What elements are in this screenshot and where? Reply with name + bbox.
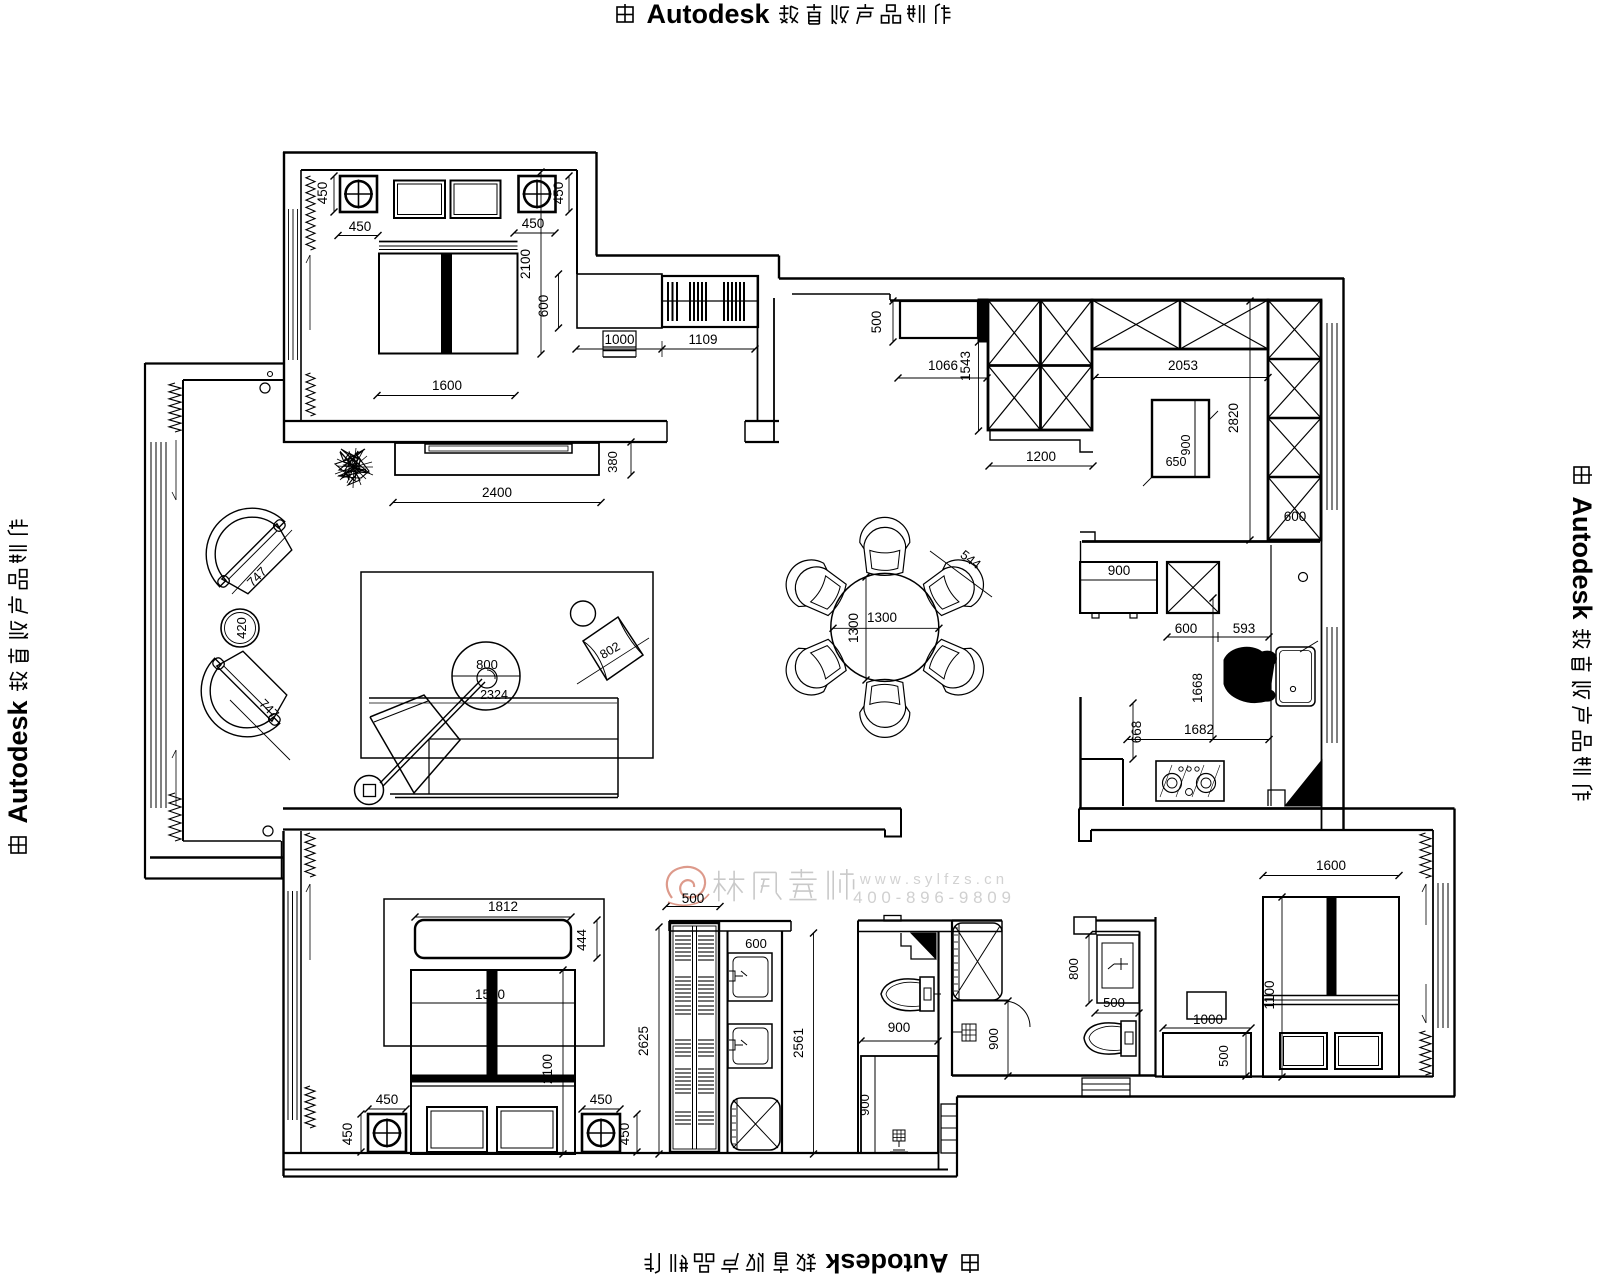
svg-text:2561: 2561 [791, 1028, 806, 1058]
svg-text:450: 450 [590, 1092, 613, 1107]
svg-text:Autodesk: Autodesk [825, 1248, 949, 1278]
svg-text:600: 600 [745, 936, 767, 951]
svg-text:1500: 1500 [475, 987, 505, 1002]
svg-text:420: 420 [234, 617, 249, 639]
svg-text:2324: 2324 [480, 688, 508, 702]
svg-text:1000: 1000 [604, 332, 634, 347]
svg-text:1543: 1543 [958, 351, 973, 381]
svg-text:900: 900 [986, 1028, 1001, 1050]
svg-text:2820: 2820 [1226, 403, 1241, 433]
svg-text:600: 600 [1284, 509, 1307, 524]
svg-text:900: 900 [857, 1094, 872, 1116]
svg-text:593: 593 [1233, 621, 1256, 636]
svg-text:500: 500 [1103, 995, 1125, 1010]
svg-text:450: 450 [340, 1123, 355, 1146]
svg-text:900: 900 [1108, 563, 1131, 578]
svg-text:444: 444 [574, 929, 589, 951]
svg-text:1300: 1300 [867, 610, 897, 625]
svg-text:600: 600 [536, 295, 551, 318]
svg-text:1200: 1200 [1026, 449, 1056, 464]
svg-text:Autodesk: Autodesk [1567, 496, 1597, 620]
svg-text:Autodesk: Autodesk [3, 700, 33, 824]
svg-text:Autodesk: Autodesk [646, 0, 770, 29]
svg-text:2400: 2400 [482, 485, 512, 500]
svg-text:1109: 1109 [688, 332, 717, 347]
svg-text:1812: 1812 [488, 899, 518, 914]
svg-text:w w w . s y l f z s . c n: w w w . s y l f z s . c n [859, 871, 1004, 888]
svg-text:1300: 1300 [846, 613, 861, 643]
svg-text:650: 650 [1166, 455, 1187, 469]
svg-text:1100: 1100 [1262, 980, 1277, 1009]
svg-text:2625: 2625 [636, 1026, 651, 1056]
svg-text:450: 450 [551, 182, 566, 205]
svg-text:2053: 2053 [1168, 358, 1198, 373]
svg-text:1600: 1600 [432, 378, 462, 393]
svg-text:1682: 1682 [1184, 722, 1214, 737]
svg-text:2100: 2100 [518, 249, 533, 279]
svg-text:450: 450 [376, 1092, 399, 1107]
svg-text:380: 380 [605, 451, 620, 473]
svg-text:900: 900 [888, 1020, 911, 1035]
svg-text:500: 500 [682, 891, 705, 906]
svg-text:1600: 1600 [1316, 858, 1346, 873]
svg-text:500: 500 [869, 311, 884, 334]
svg-text:900: 900 [1179, 435, 1193, 456]
svg-text:1066: 1066 [928, 358, 958, 373]
svg-text:2100: 2100 [540, 1054, 555, 1084]
svg-text:600: 600 [1175, 621, 1198, 636]
svg-text:450: 450 [617, 1123, 632, 1146]
svg-text:4 0 0 - 8 9 6 - 9 8 0 9: 4 0 0 - 8 9 6 - 9 8 0 9 [853, 888, 1011, 907]
svg-text:800: 800 [476, 657, 498, 672]
svg-text:1668: 1668 [1190, 673, 1205, 703]
svg-text:450: 450 [349, 219, 372, 234]
svg-text:800: 800 [1066, 958, 1081, 980]
svg-text:500: 500 [1216, 1045, 1231, 1067]
svg-text:450: 450 [315, 182, 330, 205]
